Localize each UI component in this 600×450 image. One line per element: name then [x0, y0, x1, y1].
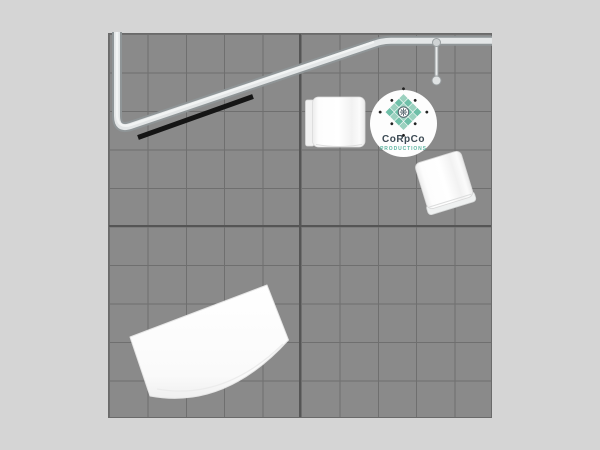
angled-counter — [413, 150, 476, 216]
small-counter-top — [313, 97, 366, 147]
curved-reception-counter — [130, 285, 289, 398]
exhibit-booth-render: CoRpCo PRODUCTIONS — [0, 0, 600, 450]
logo-subtext: PRODUCTIONS — [370, 146, 437, 152]
booth-objects-layer — [0, 0, 600, 450]
logo-wordmark: CoRpCo — [370, 135, 437, 145]
pole-bottom-knob — [432, 76, 441, 85]
reception-counter-top — [130, 285, 289, 398]
small-counter — [306, 97, 366, 147]
hanging-pole — [432, 39, 441, 86]
pole-top-knob — [433, 39, 441, 47]
